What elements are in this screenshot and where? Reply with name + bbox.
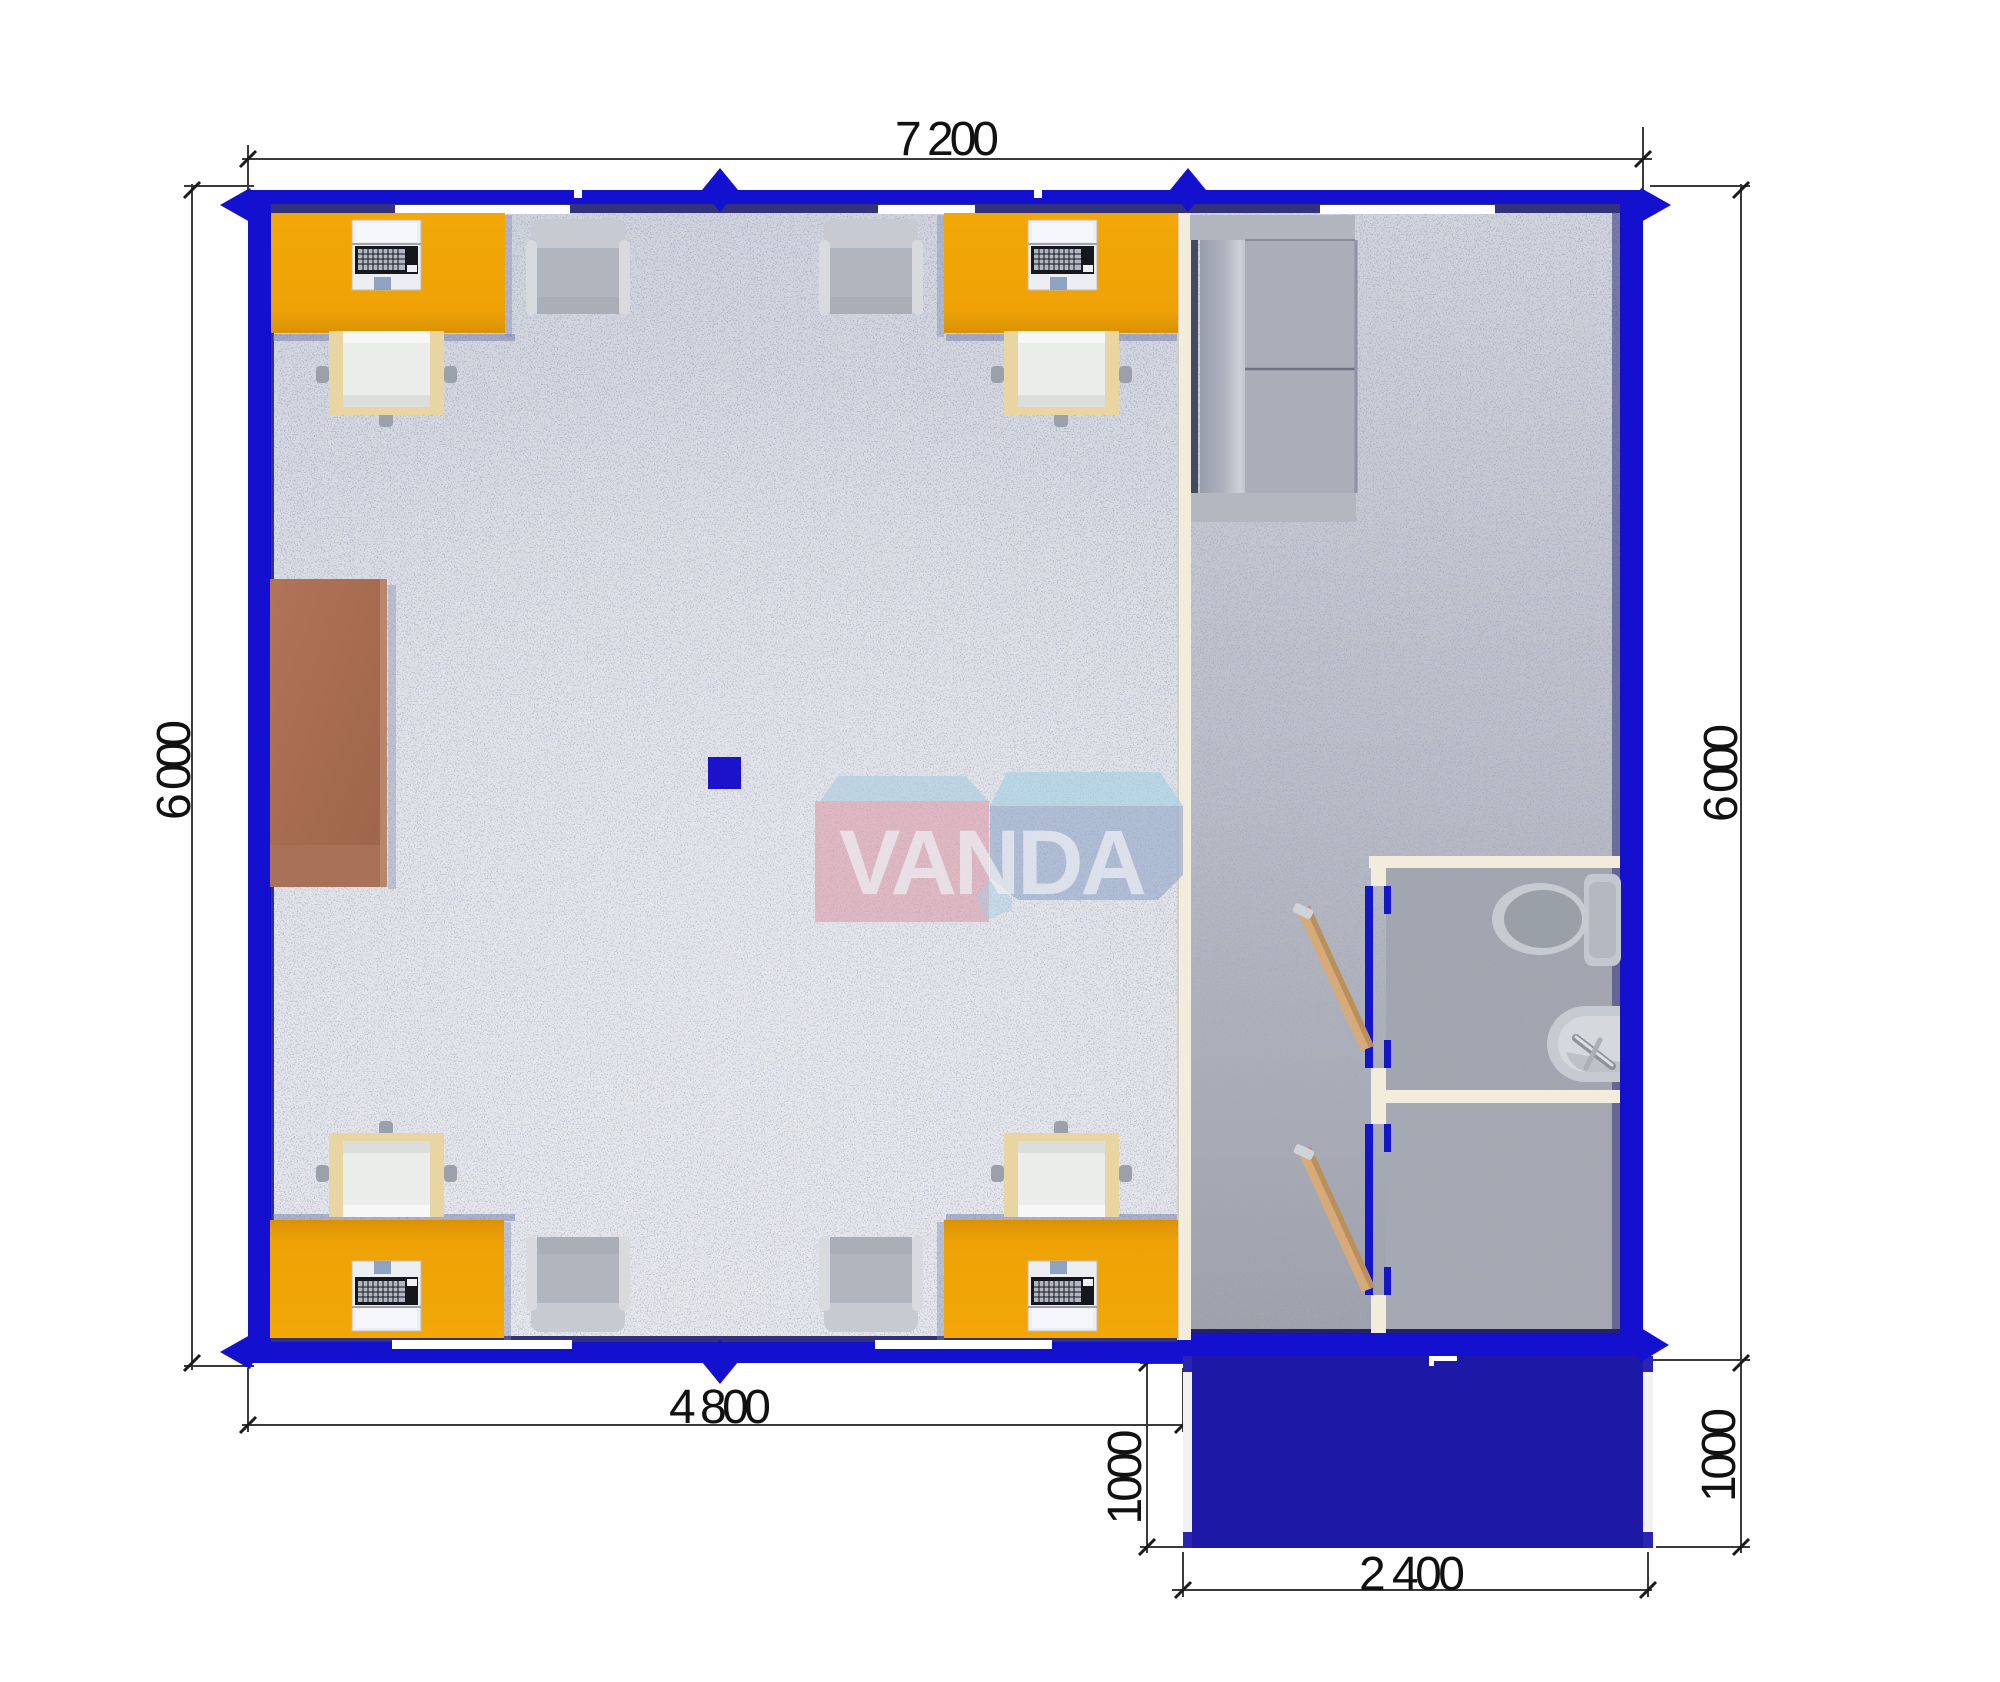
svg-text:7 200: 7 200 (895, 113, 999, 166)
svg-text:6 000: 6 000 (1695, 724, 1748, 822)
svg-text:1000: 1000 (1693, 1408, 1746, 1502)
svg-text:4 800: 4 800 (669, 1381, 771, 1434)
svg-text:6 000: 6 000 (148, 720, 201, 820)
svg-text:1000: 1000 (1099, 1430, 1152, 1525)
svg-text:2 400: 2 400 (1359, 1548, 1465, 1601)
svg-text:VANDA: VANDA (839, 812, 1149, 914)
